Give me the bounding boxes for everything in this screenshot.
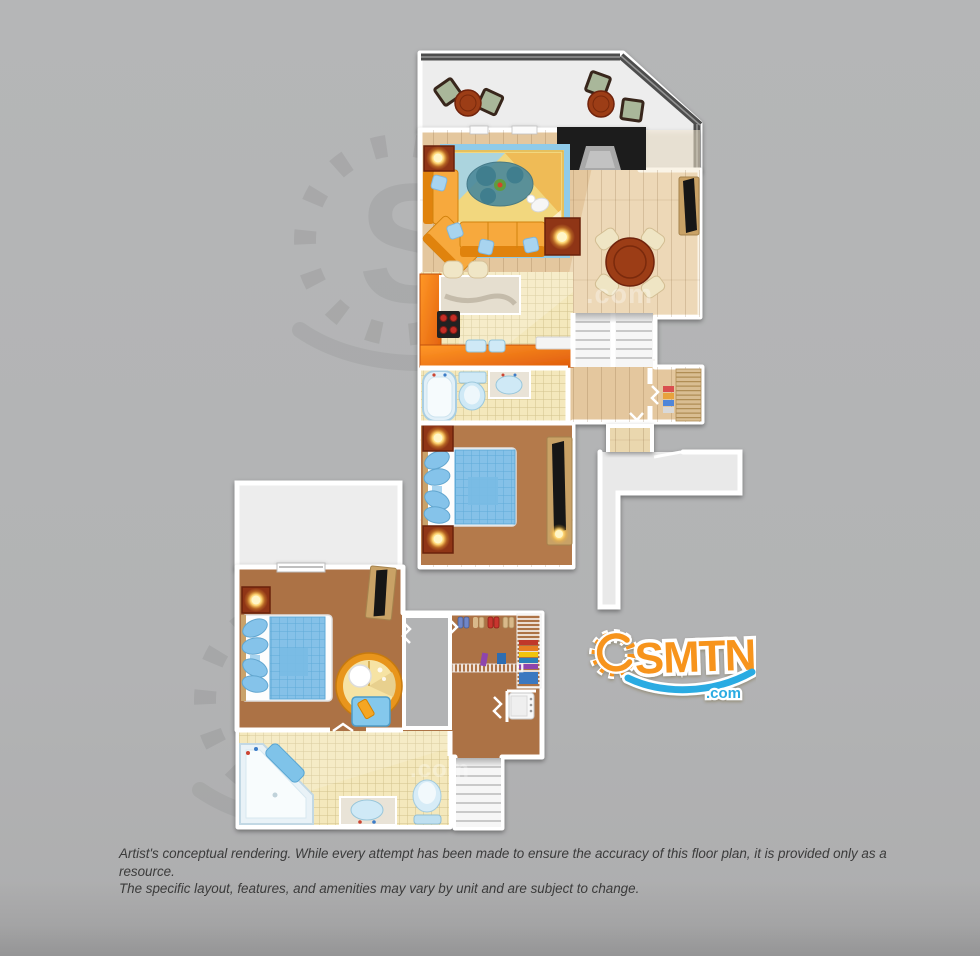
stove	[437, 311, 460, 338]
lamp	[252, 596, 261, 605]
kitchen-sink	[489, 340, 505, 352]
entry-landing	[600, 452, 740, 607]
tub-seat	[349, 665, 371, 687]
folded-clothes	[519, 640, 538, 645]
folded-clothes	[663, 393, 674, 399]
staircase-upper	[574, 313, 653, 367]
blanket-fold	[468, 477, 498, 505]
smtn-logo: SMTN .com	[586, 614, 756, 706]
bathroom-vanity	[489, 371, 530, 398]
patio-table	[588, 91, 614, 117]
faucet-hot	[432, 373, 435, 376]
lamp	[557, 232, 567, 242]
window	[470, 126, 488, 134]
upper-unit	[420, 126, 702, 567]
lower-unit	[237, 563, 542, 828]
stair-shadow	[574, 313, 653, 323]
watermark-tld-upper: .com	[586, 279, 653, 309]
fireplace	[557, 127, 646, 170]
faucet-cold	[372, 820, 376, 824]
bar-stool	[443, 261, 463, 278]
toilet	[459, 372, 486, 410]
faucet-hot	[358, 820, 362, 824]
nightstand	[423, 425, 453, 451]
patio-floor	[237, 483, 400, 567]
washer-knob	[530, 698, 533, 701]
tub-drain	[273, 793, 278, 798]
breakfast-bar	[440, 276, 520, 314]
tv-console-dining	[679, 177, 699, 235]
laundry-nook	[507, 691, 536, 722]
tv-console-bedroom	[547, 437, 572, 545]
bar-stool	[468, 261, 488, 278]
disclaimer-text: Artist's conceptual rendering. While eve…	[119, 845, 909, 898]
bathroom-vanity	[340, 797, 396, 825]
tv-screen	[552, 441, 566, 533]
lower-patio	[237, 483, 400, 567]
watermark-tld-lower: .com	[410, 756, 470, 783]
faucet-cold	[443, 373, 446, 376]
bathtub-basin	[427, 377, 452, 417]
hanging-item	[497, 653, 506, 664]
bubble	[378, 668, 383, 673]
centerpiece-flower	[498, 183, 503, 188]
washer-knob	[530, 704, 533, 707]
lamp	[434, 154, 443, 163]
disclaimer-line-1: Artist's conceptual rendering. While eve…	[119, 845, 909, 880]
faucet-hot	[246, 751, 250, 755]
lamp	[434, 434, 443, 443]
faucet-cold	[254, 747, 258, 751]
fireplace-hearth-inner	[585, 151, 615, 168]
alcove-planks	[608, 426, 652, 452]
nightstand	[423, 526, 453, 553]
coffee-table-detail	[476, 166, 496, 186]
throw-pillow	[430, 174, 447, 191]
faucet-cold	[514, 374, 517, 377]
window	[512, 126, 537, 134]
lamp	[434, 535, 443, 544]
landing-floor	[600, 452, 740, 607]
nightstand	[242, 587, 270, 613]
folded-clothes	[663, 400, 674, 406]
floor-plan-svg: S S	[0, 0, 980, 956]
vanity-sink	[351, 800, 383, 820]
patio-table	[455, 90, 481, 116]
logo-tld: .com	[706, 685, 741, 702]
faucet-hot	[502, 374, 505, 377]
entry-alcove	[608, 426, 652, 452]
vanity-sink	[496, 376, 522, 394]
decor-ball	[527, 195, 535, 203]
end-table	[424, 146, 454, 171]
smtn-logo-graphic: SMTN .com	[586, 614, 756, 706]
bubble	[382, 677, 386, 681]
coffee-table-detail	[480, 188, 496, 204]
closet-shelves	[676, 369, 701, 421]
wire-shelf-rail	[452, 664, 523, 672]
washer-door	[511, 696, 527, 716]
folded-clothes	[663, 407, 674, 413]
bed	[422, 447, 516, 526]
folded-clothes	[519, 658, 538, 663]
end-table	[545, 218, 580, 255]
sun-icon	[596, 636, 632, 672]
coffee-table-detail	[507, 167, 524, 184]
bed	[240, 615, 332, 701]
storage-bin	[519, 672, 538, 684]
sofa-back	[423, 170, 434, 224]
kitchen-sink	[466, 340, 486, 352]
folded-clothes	[663, 386, 674, 392]
patio-chair	[621, 99, 644, 122]
tv-cabinet	[365, 566, 396, 620]
exterior-pocket	[404, 616, 450, 728]
lamp	[555, 530, 563, 538]
floor-plan-canvas: S S	[0, 0, 980, 956]
blanket-fold	[280, 648, 308, 676]
washer-knob	[530, 710, 533, 713]
disclaimer-line-2: The specific layout, features, and ameni…	[119, 880, 909, 898]
dishwasher	[536, 337, 573, 349]
throw-pillow	[523, 237, 540, 254]
folded-clothes	[519, 646, 538, 651]
folded-clothes	[519, 652, 538, 657]
toilet	[413, 780, 441, 824]
throw-pillow	[478, 239, 495, 256]
